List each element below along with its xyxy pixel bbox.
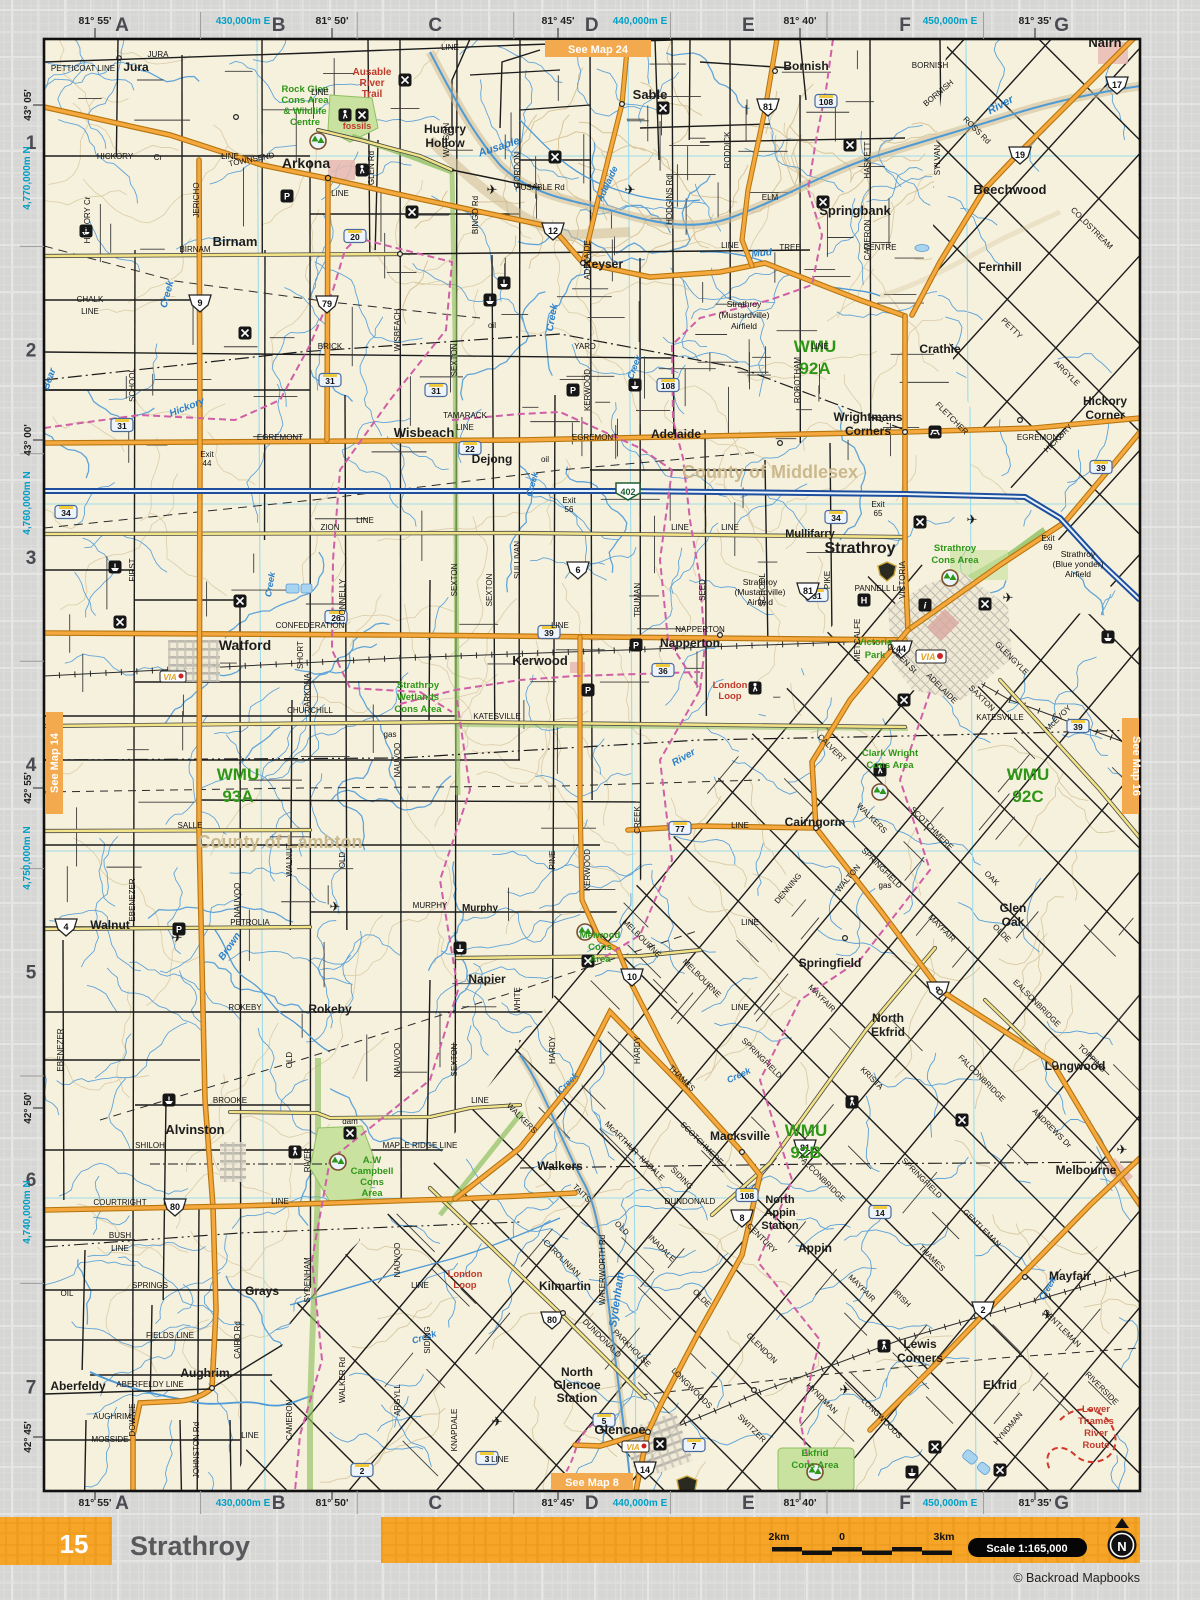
svg-text:P: P [284,191,290,201]
svg-text:Wrightmans: Wrightmans [833,410,902,424]
svg-text:Kerwood: Kerwood [512,653,568,668]
svg-text:N: N [1117,1539,1126,1554]
svg-text:42° 55': 42° 55' [23,772,34,803]
svg-text:✈: ✈ [487,182,498,197]
svg-text:Wisbeach: Wisbeach [394,425,455,440]
svg-text:Lewis: Lewis [903,1337,937,1351]
svg-text:Strathroy: Strathroy [130,1531,250,1561]
svg-text:EBENEZER: EBENEZER [56,1028,65,1071]
svg-text:4,760,000m N: 4,760,000m N [22,471,33,534]
svg-text:39: 39 [1096,463,1106,473]
svg-text:CAIRO Rd: CAIRO Rd [233,1321,242,1359]
svg-text:HICKORY Cr: HICKORY Cr [83,196,92,243]
svg-text:EGREMONT: EGREMONT [572,433,618,442]
svg-text:31: 31 [325,376,335,386]
svg-text:NAUVOO: NAUVOO [393,1243,402,1278]
svg-text:20: 20 [350,232,360,242]
svg-text:2: 2 [980,1305,985,1315]
svg-text:JERICHO: JERICHO [192,182,201,217]
svg-text:Walkers: Walkers [537,1159,583,1173]
svg-text:Cons Area: Cons Area [866,760,914,771]
svg-text:WISBEACH: WISBEACH [393,308,402,351]
svg-text:MURPHY: MURPHY [413,901,448,910]
svg-text:8: 8 [739,1213,744,1223]
svg-text:7: 7 [26,1377,37,1398]
svg-text:North: North [872,1011,904,1025]
svg-text:Murphy: Murphy [462,903,499,914]
svg-text:LINE: LINE [356,516,374,525]
svg-text:FIELDS LINE: FIELDS LINE [146,1331,194,1340]
svg-text:NAUVOO: NAUVOO [233,883,242,918]
svg-text:ARKONA: ARKONA [303,672,312,706]
svg-text:Macksville: Macksville [710,1129,770,1143]
svg-text:PETTICOAT LINE: PETTICOAT LINE [51,64,115,73]
svg-text:Aberfeldy: Aberfeldy [50,1379,106,1393]
svg-text:LINE: LINE [441,43,459,52]
svg-text:80: 80 [547,1315,557,1325]
svg-text:LINE: LINE [241,1431,259,1440]
svg-text:SEED: SEED [698,579,707,601]
svg-text:56: 56 [565,505,574,514]
svg-text:81° 50': 81° 50' [316,15,349,27]
svg-text:Exit: Exit [200,450,214,459]
svg-text:PINE: PINE [548,851,557,870]
svg-text:WMU: WMU [217,765,259,784]
svg-text:LINE: LINE [671,523,689,532]
svg-text:OIL: OIL [61,1289,74,1298]
svg-text:10: 10 [627,972,637,982]
svg-text:Airfield: Airfield [731,321,757,331]
svg-text:River: River [1084,1428,1108,1439]
svg-text:✈: ✈ [840,1382,851,1397]
svg-text:DONNELLY: DONNELLY [338,578,347,621]
svg-text:LINE: LINE [731,821,749,830]
svg-text:2: 2 [26,340,37,361]
svg-text:SPRINGS: SPRINGS [132,1281,168,1290]
svg-text:Exit: Exit [1041,534,1055,543]
svg-text:CAMERON: CAMERON [285,1399,294,1440]
svg-text:81° 40': 81° 40' [784,15,817,27]
svg-text:D: D [585,15,599,36]
svg-text:YARD: YARD [574,342,596,351]
svg-text:81: 81 [803,586,813,596]
svg-text:SULLIVAN: SULLIVAN [513,541,522,579]
svg-text:WALKER Rd: WALKER Rd [338,1357,347,1403]
svg-text:SEXTON: SEXTON [450,563,459,596]
svg-text:BRICK: BRICK [318,342,343,351]
svg-text:fossils: fossils [343,121,372,131]
svg-text:Rokeby: Rokeby [308,1002,352,1016]
svg-text:HARDY: HARDY [633,1035,642,1064]
svg-text:Glen: Glen [1000,901,1027,915]
svg-text:2: 2 [360,1466,365,1476]
svg-text:FIRST: FIRST [128,558,137,581]
svg-text:6: 6 [575,565,580,575]
svg-text:SHILOH: SHILOH [135,1141,165,1150]
svg-text:LINE: LINE [731,1003,749,1012]
svg-text:✈: ✈ [967,512,978,527]
svg-text:Alvinston: Alvinston [165,1122,224,1137]
svg-text:SCHOOL: SCHOOL [758,573,767,607]
svg-text:TRUMAN: TRUMAN [633,583,642,617]
svg-text:Adelaide: Adelaide [651,427,701,441]
svg-text:VIA: VIA [920,652,935,662]
svg-text:Park: Park [865,650,886,661]
svg-text:WHITE: WHITE [513,987,522,1013]
svg-text:P: P [585,685,591,695]
svg-text:KATESVILLE: KATESVILLE [976,713,1023,722]
svg-text:93A: 93A [222,787,253,806]
svg-text:81° 55': 81° 55' [79,15,112,27]
svg-text:LINE: LINE [111,1244,129,1253]
svg-text:DOWNIE: DOWNIE [128,1404,137,1437]
svg-text:PANNELL Ln: PANNELL Ln [855,584,902,593]
svg-text:Station: Station [557,1391,598,1405]
svg-text:HARDY: HARDY [548,1035,557,1064]
svg-text:Ausable: Ausable [353,67,392,78]
svg-text:SHORT: SHORT [296,641,305,669]
svg-text:Strathroy: Strathroy [934,543,977,554]
svg-text:430,000m E: 430,000m E [216,1498,271,1509]
svg-text:✈: ✈ [1003,590,1014,605]
svg-text:NAUVOO: NAUVOO [393,743,402,778]
svg-text:See Map 8: See Map 8 [565,1477,619,1489]
svg-text:Oak: Oak [1002,915,1025,929]
svg-text:A: A [115,15,129,36]
svg-text:3km: 3km [933,1531,954,1543]
svg-text:WMU: WMU [785,1121,827,1140]
svg-text:Jura: Jura [123,60,149,74]
svg-text:Corners: Corners [897,1351,943,1365]
svg-text:Corner: Corner [1085,408,1125,422]
svg-text:4,740,000m N: 4,740,000m N [22,1180,33,1243]
svg-text:108: 108 [819,97,833,107]
svg-text:92A: 92A [799,359,830,378]
svg-text:Strathroy: Strathroy [824,540,895,557]
svg-text:Ekfrid: Ekfrid [802,1448,829,1459]
svg-text:Aughrim: Aughrim [180,1366,229,1380]
svg-text:MAPLE RIDGE LINE: MAPLE RIDGE LINE [383,1141,458,1150]
svg-text:34: 34 [61,508,71,518]
svg-text:Napier: Napier [468,972,506,986]
svg-text:LINE: LINE [471,1096,489,1105]
svg-text:Cons Area: Cons Area [791,1460,839,1471]
svg-text:SYDENHAM: SYDENHAM [303,1257,312,1303]
svg-text:ZION: ZION [320,523,339,532]
svg-text:KATESVILLE: KATESVILLE [473,712,520,721]
svg-text:Mud: Mud [751,247,773,260]
svg-text:Bornish: Bornish [783,59,828,73]
svg-text:KERWOOD: KERWOOD [583,369,592,411]
svg-text:OLD: OLD [338,852,347,869]
svg-text:C: C [428,1493,442,1514]
svg-text:P: P [570,385,576,395]
svg-text:ROKEBY: ROKEBY [228,1003,262,1012]
svg-text:Fernhill: Fernhill [978,260,1021,274]
svg-text:CREEK: CREEK [633,806,642,834]
svg-text:Thames: Thames [1078,1416,1114,1427]
svg-text:LINE: LINE [81,307,99,316]
svg-text:LINE: LINE [456,423,474,432]
svg-text:LINE: LINE [311,88,329,97]
svg-text:G: G [1054,1493,1069,1514]
svg-text:VIA: VIA [626,1443,640,1452]
svg-text:Appin: Appin [764,1207,795,1219]
svg-text:MOSSIDE: MOSSIDE [92,1435,129,1444]
svg-text:H: H [861,595,868,605]
svg-text:31: 31 [117,421,127,431]
svg-text:GLEN Rd: GLEN Rd [367,151,376,185]
svg-text:Grays: Grays [245,1284,279,1298]
svg-text:Walnut: Walnut [90,918,130,932]
svg-text:oil: oil [541,455,549,464]
svg-text:CAMERON: CAMERON [863,219,872,260]
svg-text:Glencoe: Glencoe [553,1378,601,1392]
svg-text:44: 44 [203,459,212,468]
svg-text:AUSABLE Rd: AUSABLE Rd [515,183,564,192]
svg-text:34: 34 [831,513,841,523]
svg-text:Cons Area: Cons Area [394,704,442,715]
svg-text:Glencoe: Glencoe [594,1422,645,1437]
svg-text:LINE: LINE [331,189,349,198]
svg-text:Strathroy: Strathroy [397,680,440,691]
svg-text:Exit: Exit [871,500,885,509]
svg-text:SEXTON: SEXTON [485,573,494,606]
svg-text:0: 0 [839,1531,845,1543]
svg-text:HODGINS Rd: HODGINS Rd [665,175,674,225]
svg-text:Wetlands: Wetlands [397,692,439,703]
svg-text:36: 36 [658,666,668,676]
svg-text:SEXTON: SEXTON [450,343,459,376]
svg-text:Area: Area [589,954,611,965]
svg-text:County of Middlesex: County of Middlesex [682,462,858,482]
svg-text:LINE: LINE [491,1455,509,1464]
svg-text:See Map 24: See Map 24 [568,44,629,56]
svg-text:Kilmartin: Kilmartin [539,1279,591,1293]
svg-text:North: North [561,1365,593,1379]
svg-text:B: B [272,15,286,36]
svg-text:81: 81 [763,102,773,112]
svg-text:ADELAIDE: ADELAIDE [583,240,592,280]
svg-text:BINGO Rd: BINGO Rd [471,196,480,234]
svg-text:© Backroad Mapbooks: © Backroad Mapbooks [1013,1571,1140,1585]
svg-text:HASKETT: HASKETT [863,141,872,178]
svg-text:440,000m E: 440,000m E [613,16,668,27]
svg-text:450,000m E: 450,000m E [923,1498,978,1509]
svg-text:i: i [924,601,927,612]
svg-text:77: 77 [675,824,685,834]
svg-text:COURTRIGHT: COURTRIGHT [93,1198,146,1207]
svg-text:43° 00': 43° 00' [23,424,34,455]
svg-text:KNAPDALE: KNAPDALE [450,1409,459,1452]
svg-text:PETROLIA: PETROLIA [230,918,270,927]
svg-text:JURA: JURA [148,50,170,59]
svg-text:London: London [448,1269,483,1280]
svg-text:EBENEZER: EBENEZER [128,878,137,921]
svg-text:Lower: Lower [1082,1404,1110,1415]
svg-text:Watford: Watford [219,637,271,653]
svg-text:12: 12 [548,226,558,236]
svg-text:LINE: LINE [411,1281,429,1290]
svg-text:3: 3 [26,548,37,569]
svg-text:5: 5 [26,963,37,984]
svg-text:F: F [899,1493,911,1514]
svg-text:430,000m E: 430,000m E [216,16,271,27]
svg-text:LINE: LINE [741,918,759,927]
svg-text:39: 39 [1073,722,1083,732]
svg-text:RODDICK: RODDICK [723,131,732,169]
svg-text:E: E [742,1493,755,1514]
svg-text:oil: oil [488,321,496,330]
svg-text:Mullifarry: Mullifarry [785,528,835,540]
svg-text:2km: 2km [768,1531,789,1543]
svg-text:LINE: LINE [221,152,239,161]
svg-text:F: F [899,15,911,36]
svg-text:SYLVAN: SYLVAN [933,145,942,176]
svg-text:LINE: LINE [721,241,739,250]
svg-text:NAPPERTON: NAPPERTON [675,625,725,634]
svg-text:KERWOOD: KERWOOD [583,849,592,891]
svg-text:Springfield: Springfield [799,956,862,970]
svg-text:TAMARACK: TAMARACK [443,411,488,420]
svg-text:Strathroy: Strathroy [1061,549,1096,559]
svg-text:92C: 92C [1012,787,1043,806]
svg-text:✈: ✈ [330,899,341,914]
svg-text:450,000m E: 450,000m E [923,16,978,27]
svg-text:ELM: ELM [762,193,779,202]
svg-text:Loop: Loop [718,691,741,702]
svg-text:RIVER: RIVER [303,1148,312,1173]
svg-text:County of Lambton: County of Lambton [198,832,363,852]
svg-text:Ekfrid: Ekfrid [983,1378,1017,1392]
svg-text:E: E [742,15,755,36]
svg-text:LINE: LINE [811,342,829,351]
svg-text:79: 79 [322,299,332,309]
svg-text:19: 19 [1015,150,1025,160]
svg-text:(Mustardville): (Mustardville) [718,310,769,320]
svg-text:D: D [585,1493,599,1514]
svg-text:See Map 16: See Map 16 [1130,736,1142,796]
svg-text:A: A [115,1493,129,1514]
svg-text:Scale 1:165,000: Scale 1:165,000 [986,1543,1067,1555]
svg-text:Corners: Corners [845,424,891,438]
svg-text:Melwood: Melwood [580,930,621,941]
svg-text:Arkona: Arkona [282,155,330,171]
svg-text:Appin: Appin [798,1241,832,1255]
svg-text:Cr: Cr [154,153,163,162]
svg-text:81° 45': 81° 45' [542,15,575,27]
svg-text:Birnam: Birnam [213,234,258,249]
svg-text:440,000m E: 440,000m E [613,1498,668,1509]
svg-text:4: 4 [63,922,68,932]
svg-text:Centre: Centre [290,117,320,128]
svg-text:LINE: LINE [271,1197,289,1206]
svg-text:gas: gas [384,730,397,739]
svg-text:Campbell: Campbell [351,1166,394,1177]
svg-text:✈: ✈ [492,1414,503,1429]
svg-text:4,750,000m N: 4,750,000m N [22,826,33,889]
svg-text:Exit: Exit [562,496,576,505]
svg-text:SEXTON: SEXTON [450,1043,459,1076]
svg-text:ROBOTHAM: ROBOTHAM [793,357,802,404]
svg-text:BIRNAM: BIRNAM [179,245,210,254]
svg-text:BORNISH: BORNISH [912,61,949,70]
svg-text:P: P [633,640,639,650]
svg-text:& Wildlife: & Wildlife [283,106,326,117]
svg-text:4,770,000m N: 4,770,000m N [22,146,33,209]
svg-text:14: 14 [640,1465,650,1475]
svg-text:108: 108 [740,1191,754,1201]
svg-text:WATERWORTH Rd: WATERWORTH Rd [598,1235,607,1305]
svg-text:80: 80 [170,1202,180,1212]
svg-text:14: 14 [875,1208,885,1218]
svg-text:WALNUT: WALNUT [285,843,294,877]
svg-text:Melbourne: Melbourne [1056,1163,1117,1177]
svg-text:Ekfrid: Ekfrid [871,1025,905,1039]
svg-text:Trail: Trail [362,89,383,100]
svg-text:VICTORIA: VICTORIA [898,561,907,599]
svg-text:65: 65 [874,509,883,518]
svg-text:Station: Station [761,1220,799,1232]
svg-text:WATSON: WATSON [442,123,451,157]
svg-text:Napperton: Napperton [660,636,720,650]
svg-text:ARGYLL: ARGYLL [393,1384,402,1416]
svg-text:Dejong: Dejong [472,452,513,466]
svg-text:69: 69 [1044,543,1053,552]
svg-text:SIDING: SIDING [423,1326,432,1354]
svg-text:North: North [765,1194,795,1206]
svg-text:SALLE: SALLE [178,821,203,830]
svg-text:NAUVOO: NAUVOO [393,1043,402,1078]
svg-text:7: 7 [692,1441,697,1451]
svg-text:LINE: LINE [551,621,569,630]
svg-text:Crathie: Crathie [919,342,961,356]
svg-text:42° 45': 42° 45' [23,1421,34,1452]
svg-text:Loop: Loop [453,1280,476,1291]
svg-text:9: 9 [197,298,202,308]
svg-text:G: G [1054,15,1069,36]
svg-text:81° 35': 81° 35' [1019,15,1052,27]
svg-text:Area: Area [361,1188,383,1199]
svg-text:SCHOOL: SCHOOL [128,368,137,402]
svg-text:Cons: Cons [588,942,612,953]
svg-text:43° 05': 43° 05' [23,89,34,120]
svg-text:(Blue yonder): (Blue yonder) [1052,559,1103,569]
svg-text:JOHNSTON Rd: JOHNSTON Rd [192,1422,201,1478]
svg-text:Hickory: Hickory [1083,394,1127,408]
svg-text:See Map 14: See Map 14 [49,732,61,793]
svg-text:42° 50': 42° 50' [23,1092,34,1123]
svg-text:15: 15 [60,1529,89,1559]
svg-text:ABERFELDY LINE: ABERFELDY LINE [116,1380,183,1389]
svg-text:Strathroy: Strathroy [727,299,762,309]
svg-text:WMU: WMU [1007,765,1049,784]
svg-text:Cons Area: Cons Area [931,555,979,566]
svg-text:Airfield: Airfield [1065,569,1091,579]
svg-text:GORDON: GORDON [513,152,522,188]
svg-text:HICKORY: HICKORY [97,152,134,161]
svg-text:A.W: A.W [363,1155,382,1166]
svg-text:TREE: TREE [779,243,800,252]
svg-text:✈: ✈ [625,182,636,197]
svg-text:C: C [428,15,442,36]
svg-text:OLD: OLD [285,1052,294,1069]
svg-text:31: 31 [431,386,441,396]
svg-text:✈: ✈ [1117,1142,1128,1157]
svg-text:Springbank: Springbank [819,203,891,218]
svg-text:Cons: Cons [360,1177,384,1188]
svg-text:London: London [713,680,748,691]
